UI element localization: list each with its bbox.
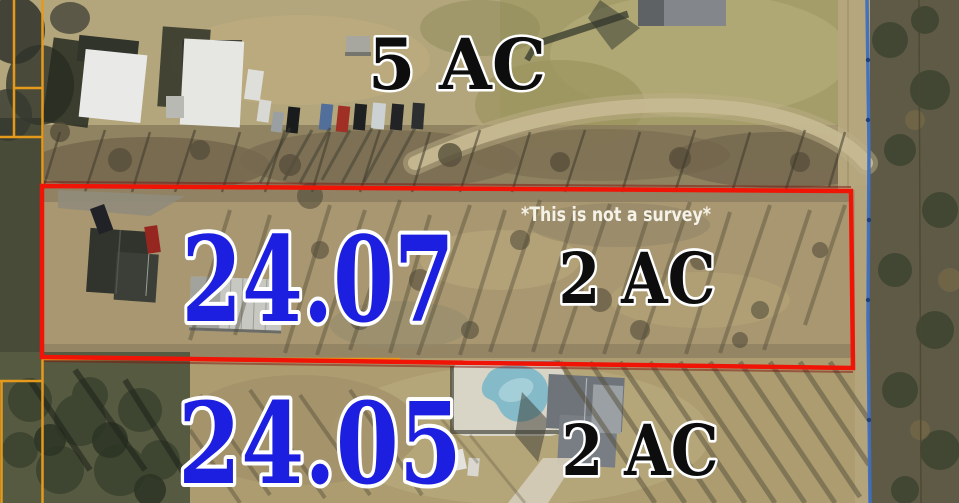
utility-line-blue [867,0,870,503]
label-bottom-parcel-number: 24.05 [178,379,462,503]
label-disclaimer: *This is not a survey* [521,203,711,226]
label-highlight-acreage: 2 AC [559,237,716,320]
label-highlight-parcel-number: 24.07 [182,210,455,349]
label-top-acreage: 5 AC [368,23,546,106]
label-bottom-acreage: 2 AC [562,409,719,492]
white-vehicle-2 [467,458,480,477]
aerial-parcel-map: 5 AC 24.07 2 AC *This is not a survey* 2… [0,0,959,503]
aerial-photo-canvas: 5 AC 24.07 2 AC *This is not a survey* 2… [0,0,959,503]
